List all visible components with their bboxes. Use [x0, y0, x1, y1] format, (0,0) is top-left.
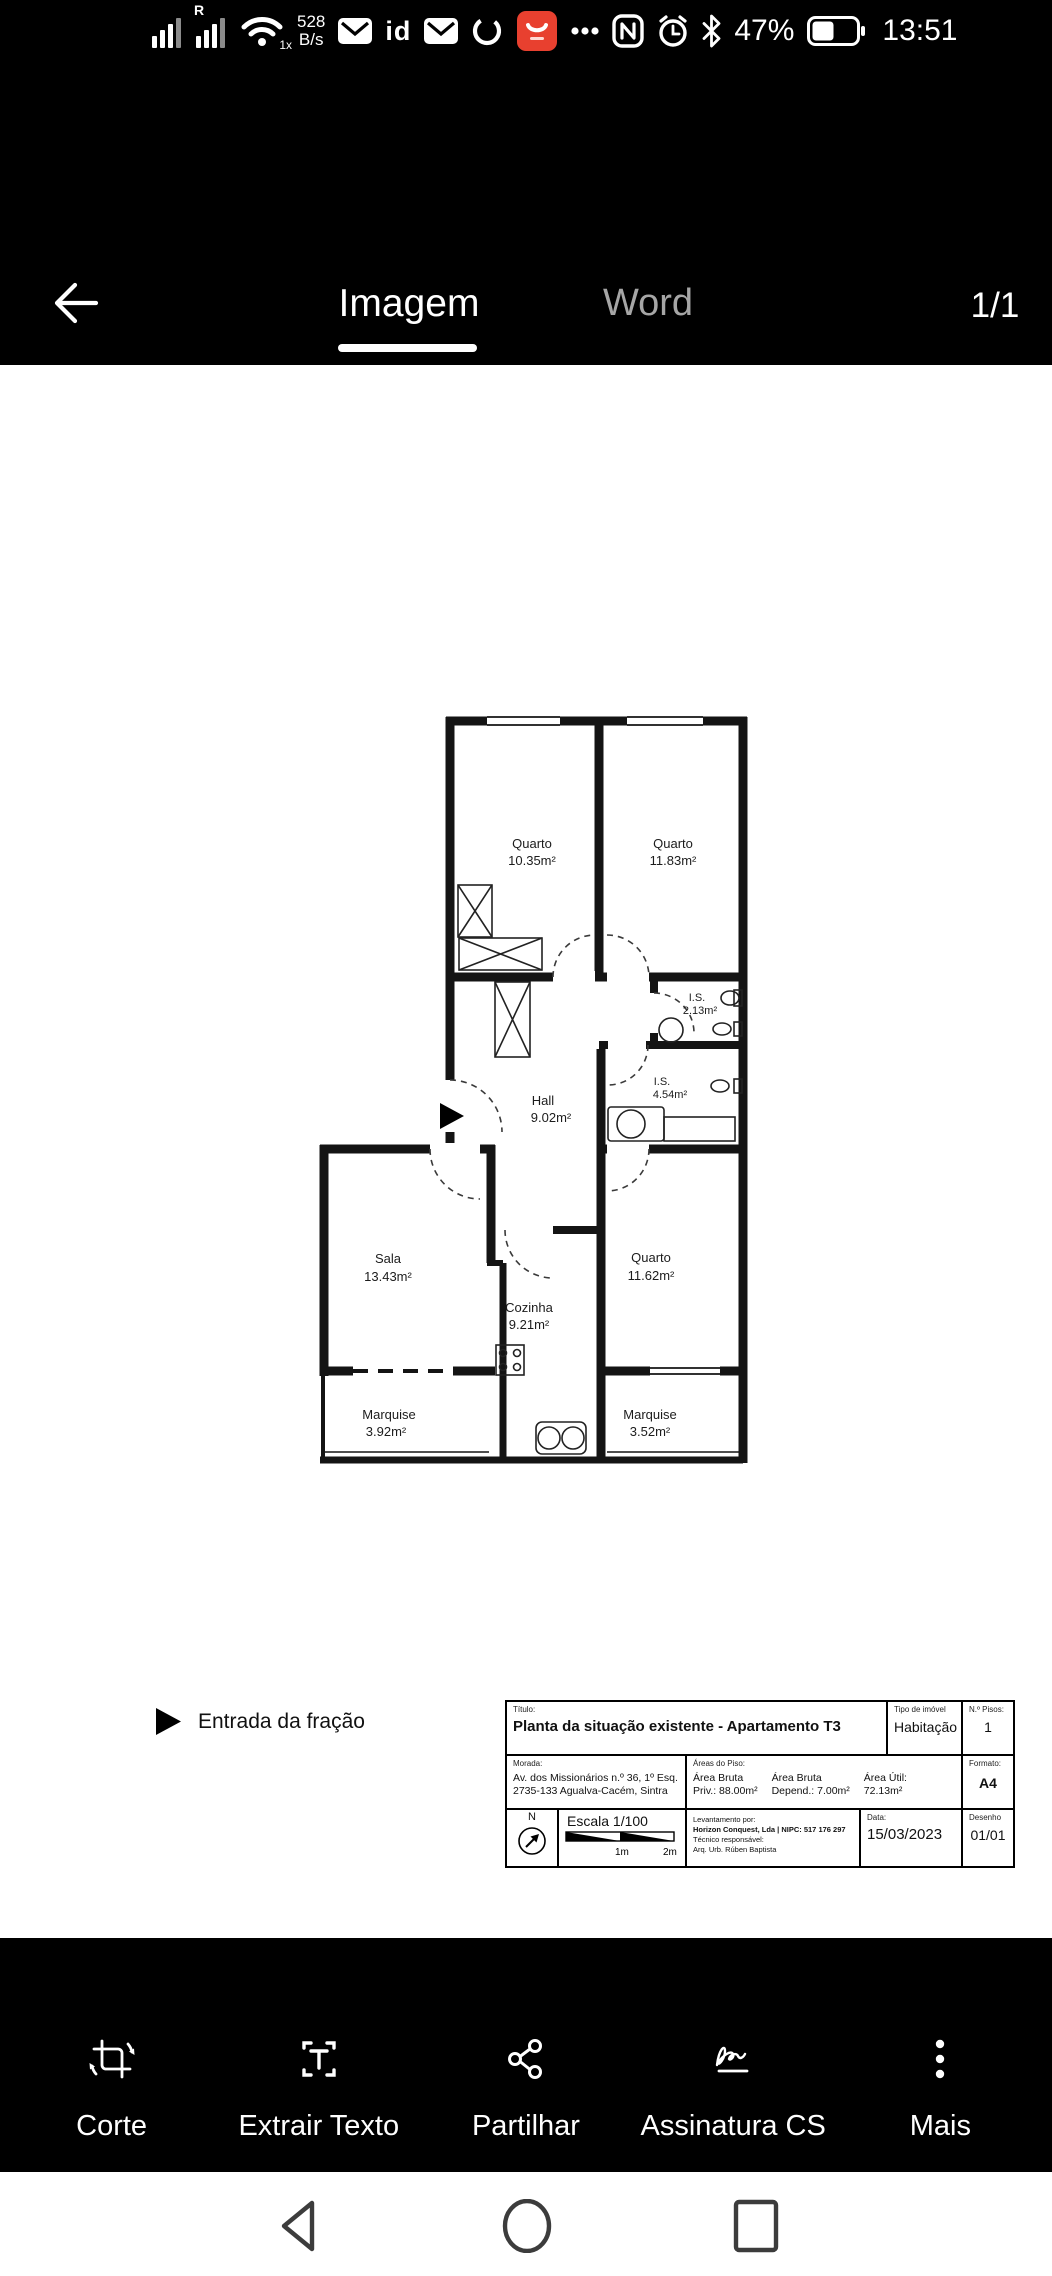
room-area-marquise1: 3.92m² — [366, 1424, 407, 1439]
entrance-arrow — [440, 1103, 464, 1129]
system-home-icon — [499, 2199, 555, 2253]
levantamento-value: Horizon Conquest, Lda | NIPC: 517 176 29… — [693, 1825, 846, 1834]
room-area-marquise2: 3.52m² — [630, 1424, 671, 1439]
system-back-icon — [276, 2199, 322, 2253]
crop-button[interactable]: Corte — [17, 2034, 207, 2144]
system-home-button[interactable] — [499, 2199, 555, 2256]
signal-bars-roaming-icon: R — [196, 14, 227, 48]
active-tab-underline — [338, 344, 477, 352]
room-area-quarto1: 10.35m² — [508, 853, 556, 868]
plan-title: Planta da situação existente - Apartamen… — [513, 1718, 880, 1736]
signal-bars-icon — [152, 14, 183, 48]
system-recent-button[interactable] — [733, 2199, 779, 2256]
escala-value: Escala 1/100 — [567, 1814, 679, 1829]
extract-text-label: Extrair Texto — [238, 2110, 399, 2143]
morada-line2: 2735-133 Agualva-Cacém, Sintra — [513, 1785, 668, 1797]
title-block: Título: Planta da situação existente - A… — [505, 1700, 1015, 1868]
room-label-is2: I.S. — [654, 1076, 671, 1088]
scale-bar: 1m 2m — [565, 1831, 683, 1859]
room-area-cozinha: 9.21m² — [509, 1317, 550, 1332]
extract-text-icon — [295, 2035, 343, 2086]
room-label-is1: I.S. — [689, 992, 706, 1004]
scale-tick-1m: 1m — [615, 1847, 629, 1858]
pisos-label: N.º Pisos: — [969, 1705, 1007, 1715]
data-label: Data: — [867, 1813, 955, 1823]
titleblock-escala-cell: Escala 1/100 1m 2m — [559, 1810, 685, 1866]
desenho-label: Desenho — [969, 1813, 1007, 1823]
area-util-l2: 72.13m² — [864, 1785, 903, 1797]
tecnico-value: Arq. Urb. Rúben Baptista — [693, 1845, 776, 1854]
titleblock-morada-cell: Morada: Av. dos Missionários n.º 36, 1º … — [507, 1756, 685, 1808]
area-util-l1: Área Útil: — [864, 1772, 907, 1784]
id-app-icon: id — [385, 16, 411, 47]
tab-word[interactable]: Word — [588, 282, 708, 325]
entrance-legend: Entrada da fração — [156, 1708, 365, 1735]
crop-rotate-icon — [88, 2035, 136, 2086]
room-area-quarto3: 11.62m² — [628, 1268, 675, 1283]
status-bar: R 1x 528 B/s id — [0, 0, 1052, 62]
room-area-is1: 2.13m² — [683, 1005, 718, 1017]
share-button[interactable]: Partilhar — [431, 2034, 621, 2144]
extract-text-button[interactable]: Extrair Texto — [224, 2034, 414, 2144]
battery-icon — [807, 16, 865, 46]
room-area-is2: 4.54m² — [653, 1089, 688, 1101]
room-label-quarto3: Quarto — [631, 1250, 671, 1265]
desenho-value: 01/01 — [969, 1827, 1007, 1843]
areas-label: Áreas do Piso: — [693, 1759, 955, 1769]
clock-time: 13:51 — [882, 14, 957, 48]
document-page: Quarto 10.35m² Quarto 11.83m² I.S. 2.13m… — [0, 365, 1052, 1938]
room-area-quarto2: 11.83m² — [650, 853, 697, 868]
page-indicator: 1/1 — [945, 286, 1045, 326]
crop-label: Corte — [76, 2110, 147, 2143]
viewer-header: R 1x 528 B/s id — [0, 0, 1052, 365]
nfc-icon — [612, 14, 644, 48]
titleblock-formato-cell: Formato: A4 — [963, 1756, 1013, 1808]
system-recent-icon — [733, 2199, 779, 2253]
tab-imagem[interactable]: Imagem — [331, 282, 487, 326]
tecnico-label: Técnico responsável: — [693, 1835, 764, 1844]
room-label-quarto1: Quarto — [512, 836, 552, 851]
tipo-value: Habitação — [894, 1719, 955, 1735]
room-label-sala: Sala — [375, 1251, 402, 1266]
more-label: Mais — [910, 2110, 971, 2143]
bottom-toolbar: Corte Extrair Texto Partilhar Assinatura… — [0, 1938, 1052, 2172]
shopping-app-icon — [516, 10, 558, 52]
area-bruta-dep-l1: Área Bruta — [772, 1772, 822, 1784]
room-label-hall: Hall — [532, 1093, 555, 1108]
titleblock-north-cell: N — [507, 1810, 557, 1866]
titleblock-pisos-cell: N.º Pisos: 1 — [963, 1702, 1013, 1754]
back-button[interactable] — [50, 278, 102, 330]
share-label: Partilhar — [472, 2110, 580, 2143]
north-arrow-icon — [515, 1823, 549, 1857]
back-arrow-icon — [51, 278, 101, 331]
pisos-value: 1 — [969, 1719, 1007, 1735]
tipo-label: Tipo de imóvel — [894, 1705, 955, 1715]
alarm-clock-icon — [657, 14, 689, 48]
room-area-sala: 13.43m² — [364, 1269, 412, 1284]
signature-icon — [709, 2035, 757, 2086]
titleblock-areas-cell: Áreas do Piso: Área Bruta Priv.: 88.00m²… — [687, 1756, 961, 1808]
network-speed-unit: B/s — [299, 30, 324, 49]
signature-label: Assinatura CS — [640, 2110, 825, 2143]
more-notifications-icon — [571, 26, 599, 36]
mail-notification-icon-2 — [424, 18, 458, 44]
titleblock-data-cell: Data: 15/03/2023 — [861, 1810, 961, 1866]
room-label-quarto2: Quarto — [653, 836, 693, 851]
formato-label: Formato: — [969, 1759, 1007, 1769]
north-label: N — [528, 1812, 536, 1823]
area-bruta-priv-l2: Priv.: 88.00m² — [693, 1785, 758, 1797]
system-nav-bar — [0, 2172, 1052, 2276]
share-icon — [502, 2035, 550, 2086]
formato-value: A4 — [969, 1775, 1007, 1791]
wifi-badge: 1x — [279, 38, 292, 52]
titulo-label: Título: — [513, 1705, 880, 1715]
area-bruta-dep-l2: Depend.: 7.00m² — [772, 1785, 850, 1797]
battery-percent: 47% — [734, 14, 794, 48]
morada-label: Morada: — [513, 1759, 679, 1769]
tab-bar: Imagem Word 1/1 — [0, 130, 1052, 250]
wifi-icon: 1x — [240, 14, 284, 48]
system-back-button[interactable] — [276, 2199, 322, 2256]
room-label-marquise1: Marquise — [362, 1407, 415, 1422]
signature-button[interactable]: Assinatura CS — [638, 2034, 828, 2144]
data-value: 15/03/2023 — [867, 1827, 955, 1843]
scale-tick-2m: 2m — [663, 1847, 677, 1858]
titleblock-titulo-cell: Título: Planta da situação existente - A… — [507, 1702, 886, 1754]
levantamento-label: Levantamento por: — [693, 1815, 756, 1824]
floor-plan-image: Quarto 10.35m² Quarto 11.83m² I.S. 2.13m… — [290, 700, 780, 1490]
room-label-marquise2: Marquise — [623, 1407, 676, 1422]
titleblock-levantamento-cell: Levantamento por: Horizon Conquest, Lda … — [687, 1810, 859, 1866]
entrance-legend-label: Entrada da fração — [198, 1710, 365, 1734]
roaming-indicator: R — [194, 2, 204, 18]
network-speed: 528 B/s — [297, 13, 325, 49]
more-button[interactable]: Mais — [845, 2034, 1035, 2144]
bluetooth-icon — [702, 14, 721, 48]
network-speed-value: 528 — [297, 12, 325, 31]
mail-notification-icon — [338, 18, 372, 44]
morada-line1: Av. dos Missionários n.º 36, 1º Esq. — [513, 1772, 678, 1784]
area-bruta-priv-l1: Área Bruta — [693, 1772, 743, 1784]
sync-loop-icon — [471, 15, 503, 47]
room-label-cozinha: Cozinha — [505, 1300, 553, 1315]
entrance-triangle-icon — [156, 1708, 181, 1735]
room-area-hall: 9.02m² — [531, 1110, 572, 1125]
titleblock-tipo-cell: Tipo de imóvel Habitação — [888, 1702, 961, 1754]
more-vertical-icon — [916, 2035, 964, 2086]
titleblock-desenho-cell: Desenho 01/01 — [963, 1810, 1013, 1866]
